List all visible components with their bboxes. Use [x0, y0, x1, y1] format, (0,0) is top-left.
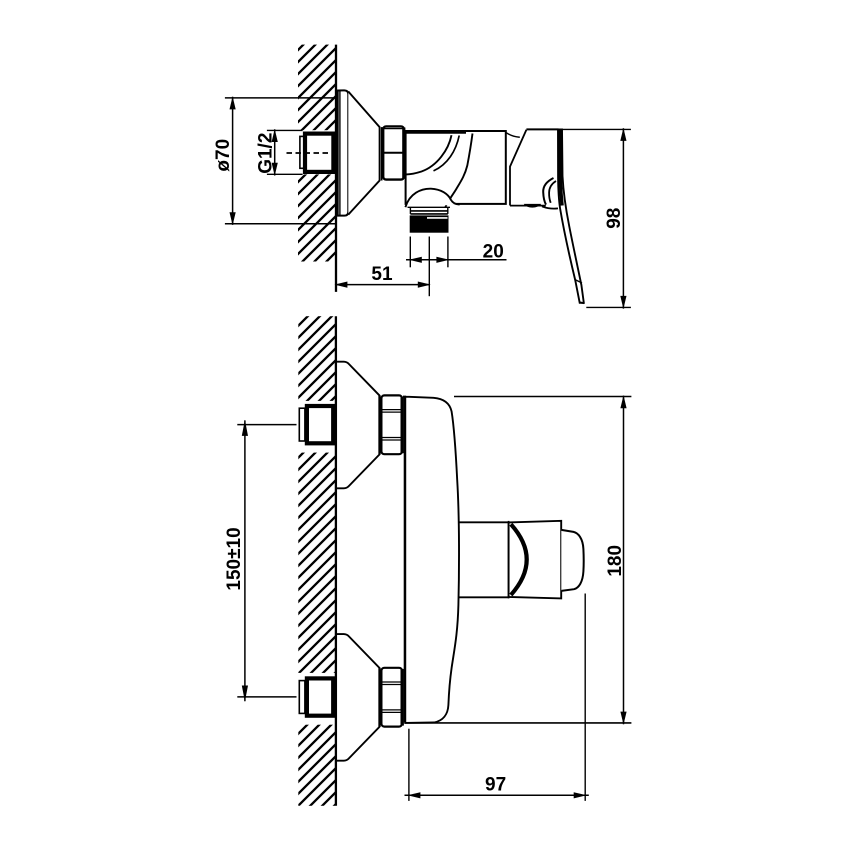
svg-text:51: 51 — [371, 264, 393, 285]
svg-text:97: 97 — [485, 774, 506, 795]
svg-text:180: 180 — [605, 545, 626, 577]
svg-text:20: 20 — [483, 242, 504, 263]
svg-text:98: 98 — [604, 208, 625, 229]
svg-text:150±10: 150±10 — [224, 527, 245, 590]
svg-text:ø70: ø70 — [213, 139, 234, 172]
svg-text:G1/2: G1/2 — [255, 133, 276, 174]
